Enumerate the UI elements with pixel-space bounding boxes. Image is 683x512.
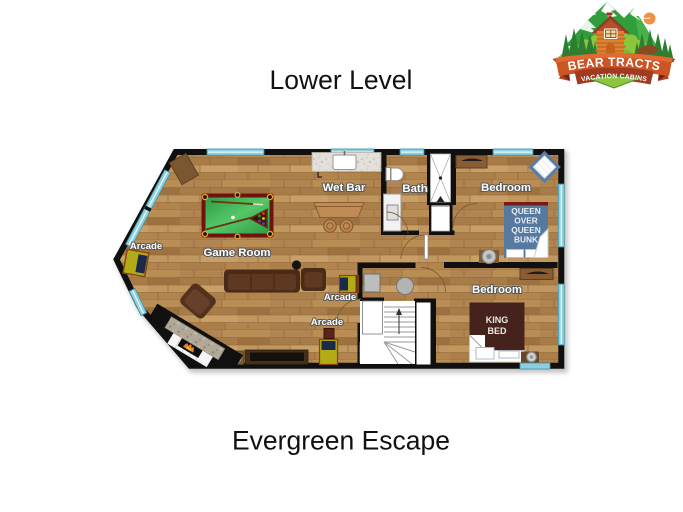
- svg-text:QUEEN: QUEEN: [511, 225, 541, 235]
- svg-text:Wet Bar: Wet Bar: [323, 182, 366, 194]
- svg-text:Bedroom: Bedroom: [481, 182, 531, 194]
- svg-text:Bath: Bath: [402, 183, 427, 195]
- svg-text:QUEEN: QUEEN: [511, 206, 541, 216]
- svg-text:Game Room: Game Room: [203, 247, 270, 259]
- svg-text:KING: KING: [486, 315, 509, 325]
- svg-text:Evergreen Escape: Evergreen Escape: [232, 426, 450, 456]
- svg-text:Lower Level: Lower Level: [270, 65, 413, 95]
- svg-text:Arcade: Arcade: [311, 317, 343, 328]
- svg-text:Arcade: Arcade: [324, 292, 356, 303]
- svg-text:OVER: OVER: [514, 216, 538, 226]
- svg-text:Bedroom: Bedroom: [472, 284, 522, 296]
- svg-text:BED: BED: [487, 326, 507, 336]
- svg-text:Arcade: Arcade: [130, 241, 162, 252]
- svg-text:BUNK: BUNK: [514, 235, 538, 245]
